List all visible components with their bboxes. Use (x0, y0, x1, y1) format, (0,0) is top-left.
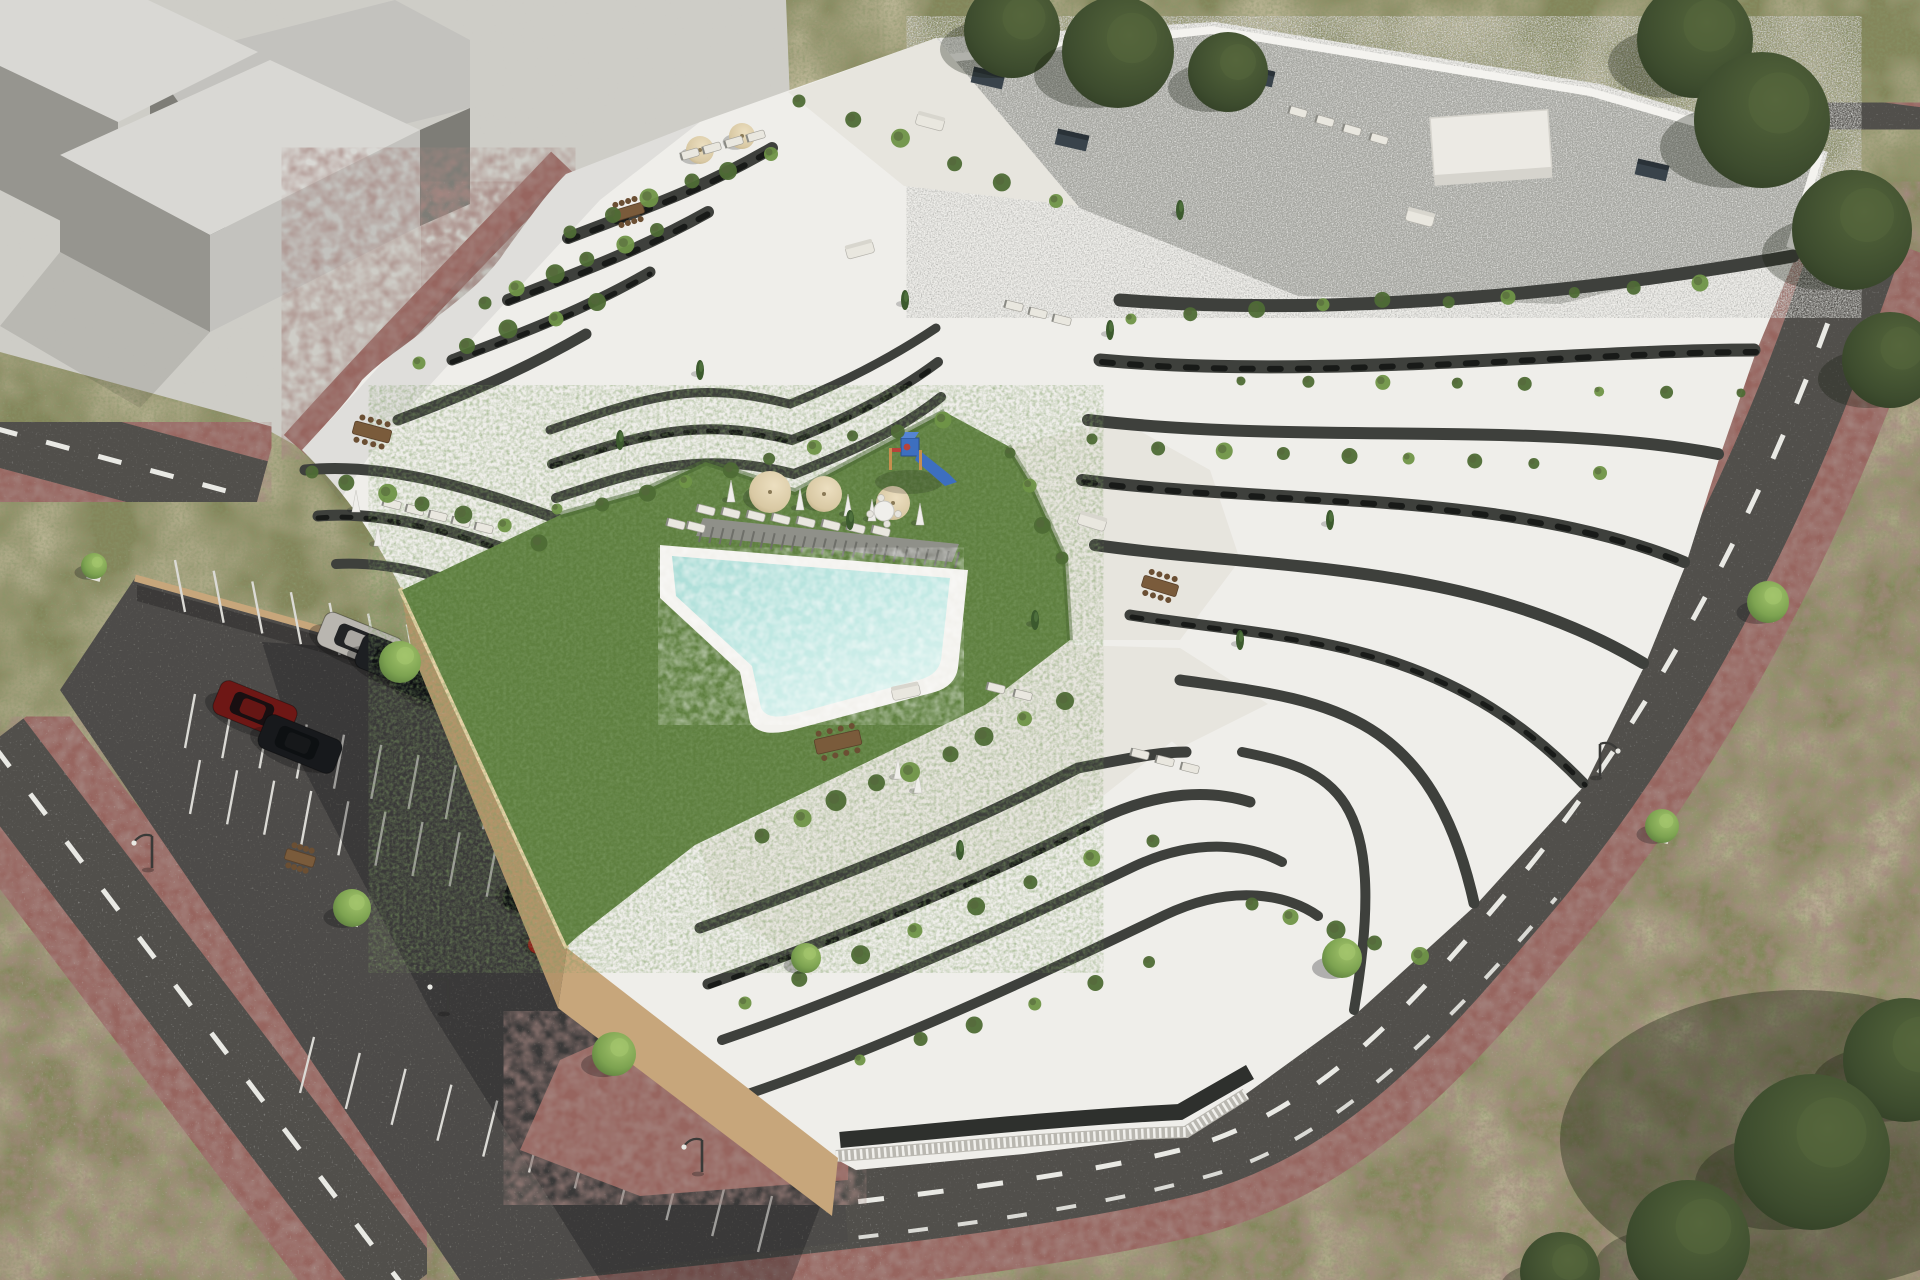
play-post (889, 448, 892, 470)
parasol-pole (768, 490, 772, 494)
tree-highlight (396, 647, 414, 665)
terrace-plant-core (1285, 911, 1293, 919)
tree-highlight (610, 1038, 628, 1056)
terrace-plant-core (1694, 277, 1703, 286)
tree-highlight (349, 894, 365, 910)
terrace-plant-core (855, 1055, 861, 1061)
terrace-plant-core (945, 748, 953, 756)
terrace-plant-core (652, 225, 659, 232)
terrace-plant-core (1089, 977, 1097, 985)
chair (867, 511, 874, 518)
terrace-plant-core (1036, 519, 1045, 528)
terrace-plant-core (1414, 950, 1423, 959)
cypress-highlight (1179, 202, 1183, 212)
terrace-plant-core (937, 414, 946, 423)
chair (895, 511, 902, 518)
terrace-plant-core (607, 209, 615, 217)
terrace-plant-core (1595, 387, 1600, 392)
terrace-plant-core (1369, 937, 1377, 945)
terrace-plant-core (642, 191, 652, 201)
terrace-plant-core (1529, 459, 1535, 465)
terrace-plant-core (1519, 378, 1526, 385)
terrace-plant-core (552, 504, 558, 510)
lamp-head (681, 1144, 686, 1149)
lamp-head (1615, 748, 1620, 753)
terrace-plant-core (1278, 448, 1285, 455)
terrace-plant-core (591, 296, 600, 305)
terrace-plant-core (1087, 434, 1093, 440)
terrace-plant-core (829, 793, 840, 804)
tree-highlight (1676, 1199, 1732, 1255)
terrace-plant-core (793, 973, 801, 981)
terrace-plant-core (847, 114, 855, 122)
terrace-plant-core (1469, 455, 1477, 463)
terrace-plant-core (340, 477, 348, 485)
terrace-plant-core (892, 426, 899, 433)
terrace-plant-core (870, 777, 879, 786)
terrace-plant-core (416, 498, 424, 506)
terrace-plant-core (1030, 999, 1037, 1006)
chair (884, 521, 891, 528)
terrace-plant-core (722, 165, 731, 174)
terrace-plant-core (809, 442, 817, 450)
terrace-plant-core (968, 1019, 977, 1028)
lamp-shadow (692, 1172, 704, 1177)
terrace-plant-core (1059, 695, 1068, 704)
terrace-plant-core (1024, 480, 1031, 487)
lamp-shadow (142, 868, 154, 873)
terrace-plant-core (1153, 443, 1160, 450)
penthouse-top (1430, 110, 1552, 176)
tree-highlight (803, 947, 816, 960)
tree-highlight (1659, 814, 1673, 828)
terrace-plant-core (1737, 389, 1742, 394)
tree-highlight (1683, 0, 1735, 52)
terrace-plant-core (1628, 282, 1635, 289)
terrace-plant-core (1318, 299, 1325, 306)
cypress-highlight (619, 432, 623, 442)
terrace-plant-core (848, 431, 854, 437)
lamp-head (131, 840, 136, 845)
terrace-plant-core (680, 476, 687, 483)
terrace-plant-core (1329, 923, 1339, 933)
tree-highlight (1796, 1097, 1866, 1167)
aerial-render (0, 0, 1920, 1280)
terrace-plant-core (1185, 309, 1192, 316)
terrace-plant-core (619, 238, 628, 247)
terrace-plant-core (1595, 468, 1602, 475)
terrace-plant-core (1237, 377, 1242, 382)
terrace-plant-core (995, 176, 1004, 185)
terrace-plant-core (970, 900, 979, 909)
terrace-plant-core (533, 537, 542, 546)
terrace-plant-core (1570, 288, 1576, 294)
tree-highlight (1552, 1244, 1588, 1280)
cypress-highlight (1329, 512, 1333, 522)
terrace-plant-core (499, 520, 506, 527)
tree-highlight (1764, 587, 1782, 605)
terrace-plant-core (1126, 314, 1132, 320)
terrace-plant-core (1303, 377, 1309, 383)
tree-highlight (92, 557, 103, 568)
terrace-plant-core (1377, 377, 1385, 385)
terrace-plant-core (307, 467, 314, 474)
roof-penthouse-box (1430, 110, 1552, 186)
terrace-plant-core (1051, 196, 1058, 203)
terrace-plant-core (740, 998, 747, 1005)
chair (878, 495, 885, 502)
terrace-plant-core (1005, 448, 1011, 454)
tree-highlight (1748, 72, 1809, 133)
play-porthole (904, 444, 911, 451)
terrace-plant-core (1344, 450, 1352, 458)
terrace-plant-core (1085, 852, 1094, 861)
terrace-plant-core (1148, 836, 1155, 843)
tree-highlight (1107, 13, 1157, 63)
terrace-plant-core (1025, 877, 1032, 884)
cypress-highlight (959, 842, 963, 852)
terrace-plant-core (597, 499, 604, 506)
terrace-plant-core (949, 158, 957, 166)
terrace-plant-core (414, 358, 421, 365)
terrace-plant-core (641, 487, 650, 496)
terrace-plant-core (915, 1034, 922, 1041)
terrace-plant-core (903, 765, 913, 775)
terrace-plant-core (854, 948, 864, 958)
terrace-plant-core (1057, 553, 1064, 560)
terrace-plant-core (796, 812, 805, 821)
cypress-highlight (1239, 632, 1243, 642)
cypress-highlight (904, 292, 908, 302)
cypress-highlight (1109, 322, 1113, 332)
terrace-plant-core (1444, 297, 1450, 303)
terrace-plant-core (1661, 387, 1668, 394)
round-table (874, 501, 894, 521)
terrace-plant-core (909, 925, 917, 933)
terrace-plant-core (1502, 292, 1510, 300)
terrace-plant-core (1247, 899, 1254, 906)
cypress-highlight (849, 512, 853, 522)
terrace-plant-core (381, 487, 391, 497)
tree-highlight (1220, 44, 1256, 80)
terrace-plant-core (511, 282, 519, 290)
terrace-plant-core (581, 253, 589, 261)
terrace-plant-core (548, 267, 558, 277)
terrace-plant-core (1250, 303, 1259, 312)
terrace-plant-core (550, 313, 558, 321)
terrace-plant-core (1144, 957, 1150, 963)
terrace-plant-core (1404, 454, 1410, 460)
lamp-head (427, 984, 432, 989)
terrace-plant-core (457, 508, 466, 517)
parasol-pole (822, 492, 826, 496)
terrace-plant-core (1453, 378, 1459, 384)
terrace-plant-core (480, 298, 487, 305)
roof-penthouse (1430, 110, 1552, 186)
cypress-highlight (699, 362, 703, 372)
play-bar (891, 448, 901, 452)
terrace-plant-core (461, 340, 469, 348)
terrace-plant-core (977, 730, 987, 740)
terrace-plant-core (1019, 713, 1027, 721)
terrace-plant-core (794, 96, 801, 103)
terrace-plant-core (1218, 445, 1227, 454)
play-post-2 (919, 450, 922, 470)
tree-highlight (1840, 188, 1894, 242)
cypress-highlight (1034, 612, 1038, 622)
tree-highlight (1339, 944, 1356, 961)
lamp-shadow (1590, 776, 1602, 781)
lamp-shadow (438, 1012, 450, 1017)
aerial-render-stage (0, 0, 1920, 1280)
terrace-plant-core (501, 322, 511, 332)
terrace-plant-core (894, 131, 904, 141)
terrace-plant-core (686, 175, 694, 183)
terrace-plant-core (565, 227, 572, 234)
terrace-plant-core (756, 830, 764, 838)
terrace-plant-core (766, 149, 773, 156)
terrace-plant-core (725, 464, 733, 472)
terrace-plant-core (764, 454, 770, 460)
terrace-plant-core (1376, 294, 1384, 302)
